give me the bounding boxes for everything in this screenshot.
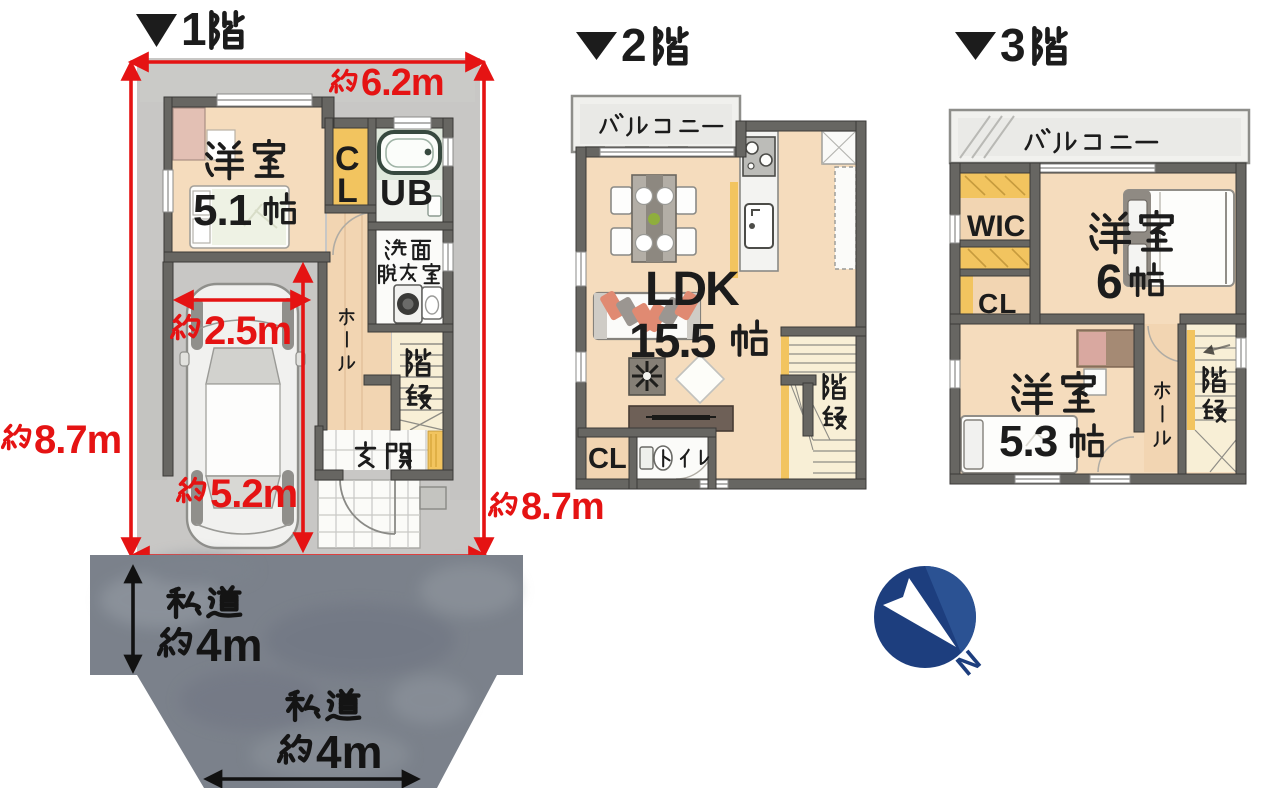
svg-text:CL: CL <box>588 443 627 475</box>
svg-text:L: L <box>337 172 358 210</box>
svg-text:5.3: 5.3 <box>999 417 1057 466</box>
svg-text:2.5m: 2.5m <box>204 309 291 353</box>
svg-text:3: 3 <box>1000 19 1026 71</box>
svg-text:5.1: 5.1 <box>193 186 252 235</box>
svg-text:CL: CL <box>978 288 1017 319</box>
svg-text:6.2m: 6.2m <box>361 62 444 104</box>
svg-text:8.7m: 8.7m <box>34 418 121 462</box>
svg-text:WIC: WIC <box>967 210 1025 243</box>
svg-text:1: 1 <box>181 3 207 55</box>
svg-text:UB: UB <box>380 172 434 213</box>
svg-text:5.2m: 5.2m <box>210 472 297 516</box>
svg-text:6: 6 <box>1096 256 1123 309</box>
svg-text:LDK: LDK <box>645 263 740 316</box>
svg-text:2: 2 <box>621 19 647 71</box>
svg-text:4m: 4m <box>196 619 262 671</box>
svg-text:15.5: 15.5 <box>629 315 716 368</box>
svg-text:4m: 4m <box>316 726 382 778</box>
svg-text:8.7m: 8.7m <box>521 486 604 528</box>
